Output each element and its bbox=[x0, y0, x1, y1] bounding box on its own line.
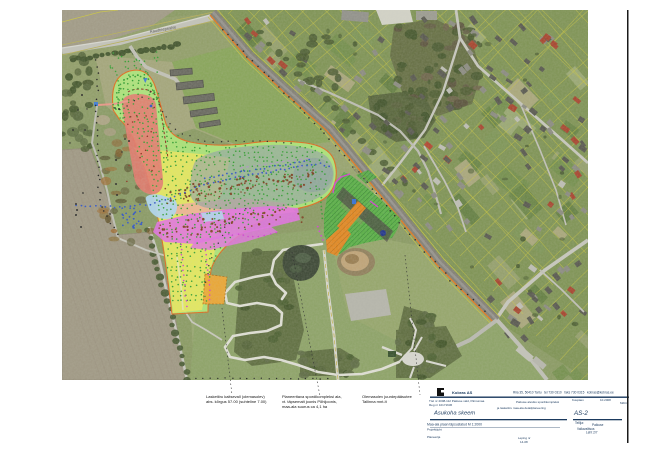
svg-text:maa-ala suurus ca 4,1 ha: maa-ala suurus ca 4,1 ha bbox=[282, 404, 328, 409]
svg-text:AS-2: AS-2 bbox=[573, 410, 588, 417]
svg-text:ja lasketiiru maa-ala detailpl: ja lasketiiru maa-ala detailplaneering bbox=[496, 406, 546, 410]
svg-text:Leht 2/7: Leht 2/7 bbox=[586, 431, 598, 435]
svg-text:Riia 35, 50410 Tartu tel 730: Riia 35, 50410 Tartu tel 730 0310 faks 7… bbox=[513, 391, 614, 395]
svg-text:Kobras AS: Kobras AS bbox=[452, 390, 473, 395]
svg-text:abs. kõrgus 57.00 (suhteline 7: abs. kõrgus 57.00 (suhteline 7.00) bbox=[206, 399, 267, 404]
svg-text:Paikuse aleviku spordikompleks: Paikuse aleviku spordikompleksi bbox=[516, 400, 560, 404]
svg-text:Planeerija: Planeerija bbox=[427, 435, 441, 439]
svg-text:Tallinna mnt-lt: Tallinna mnt-lt bbox=[362, 399, 388, 404]
svg-text:Tellija:: Tellija: bbox=[575, 421, 584, 425]
svg-text:Kuupäev: Kuupäev bbox=[572, 398, 584, 402]
svg-text:Reg nr 10171636: Reg nr 10171636 bbox=[429, 403, 453, 407]
svg-text:Projektijuht: Projektijuht bbox=[427, 428, 442, 432]
svg-text:Maa-ala plaan täpsustatud M 1: Maa-ala plaan täpsustatud M 1:2000 bbox=[427, 423, 482, 427]
svg-text:14-08: 14-08 bbox=[520, 440, 528, 444]
svg-text:10.2008: 10.2008 bbox=[600, 398, 611, 402]
svg-text:Mõõt: Mõõt bbox=[620, 401, 627, 405]
svg-text:Asukoha skeem: Asukoha skeem bbox=[433, 411, 475, 417]
